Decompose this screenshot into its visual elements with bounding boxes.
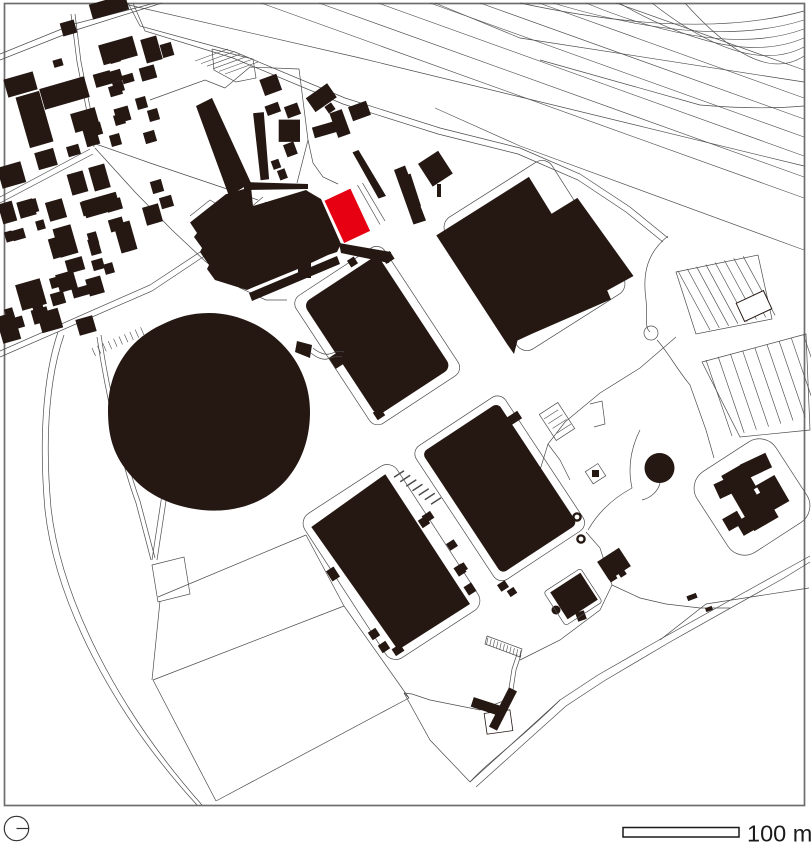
svg-text:100 m: 100 m — [747, 821, 811, 844]
